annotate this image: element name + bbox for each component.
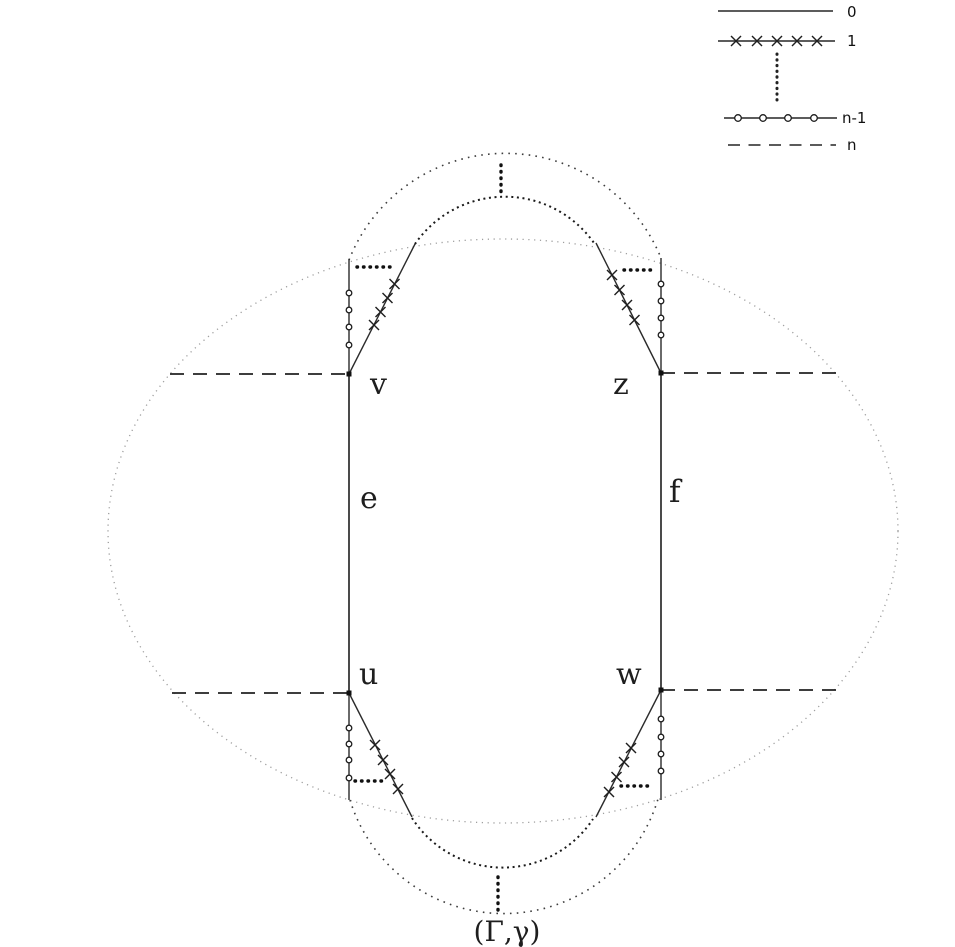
vertex-u-label: u <box>359 657 378 692</box>
circle-mark <box>346 307 352 313</box>
corner-bottom-left <box>346 693 412 817</box>
legend-circle-mark <box>735 115 742 122</box>
x-marked-edge-top-right <box>596 243 661 373</box>
circle-mark <box>658 768 664 774</box>
circle-mark <box>346 757 352 763</box>
circle-mark <box>346 290 352 296</box>
x-marked-edge-bottom-left <box>349 693 412 817</box>
outer-boundary-ellipse <box>108 239 898 823</box>
legend-label-0: 0 <box>847 3 857 21</box>
vertex-v-dot <box>347 372 352 377</box>
corner-top-right <box>596 243 664 373</box>
bottom-inner-dotted-arc <box>412 818 593 868</box>
circle-mark <box>658 315 664 321</box>
circle-mark <box>658 734 664 740</box>
vertex-z-dot <box>659 371 664 376</box>
circle-mark <box>658 281 664 287</box>
circle-mark <box>346 342 352 348</box>
legend-row-0: 0 <box>718 3 857 21</box>
legend-circle-mark <box>760 115 767 122</box>
legend-row-n-1: n-1 <box>724 109 866 127</box>
legend-row-1: 1 <box>718 32 857 50</box>
corner-top-left <box>346 244 415 374</box>
legend-circle-mark <box>811 115 818 122</box>
top-outer-dotted-arc <box>349 153 661 260</box>
vertex-u-dot <box>347 691 352 696</box>
x-marked-edge-bottom-right <box>596 690 661 817</box>
legend-label-n: n <box>847 136 857 154</box>
circle-mark <box>346 775 352 781</box>
corner-bottom-right <box>596 690 664 817</box>
legend-label-n-1: n-1 <box>842 109 866 127</box>
circle-mark <box>658 298 664 304</box>
edge-e-label: e <box>360 481 378 516</box>
vertex-w-label: w <box>616 657 642 692</box>
legend: 0 1 n-1 n <box>718 3 866 154</box>
vertex-w-dot <box>659 688 664 693</box>
top-inner-dotted-arc <box>415 197 594 244</box>
circle-mark <box>658 332 664 338</box>
x-marked-edge-top-left <box>349 244 415 374</box>
edge-f-label: f <box>669 474 683 510</box>
vertex-v-label: v <box>369 367 387 402</box>
circle-mark <box>658 716 664 722</box>
legend-circle-mark <box>785 115 792 122</box>
graph-figure-canvas: v z u w e f (Γ,γ) 0 1 <box>0 0 955 947</box>
bottom-outer-dotted-arc <box>350 799 658 914</box>
legend-row-n: n <box>728 136 857 154</box>
circle-mark <box>346 725 352 731</box>
circle-mark <box>346 324 352 330</box>
legend-label-1: 1 <box>847 32 857 50</box>
figure-caption: (Γ,γ) <box>474 915 541 947</box>
circle-mark <box>658 751 664 757</box>
circle-mark <box>346 741 352 747</box>
vertex-z-label: z <box>613 367 629 402</box>
